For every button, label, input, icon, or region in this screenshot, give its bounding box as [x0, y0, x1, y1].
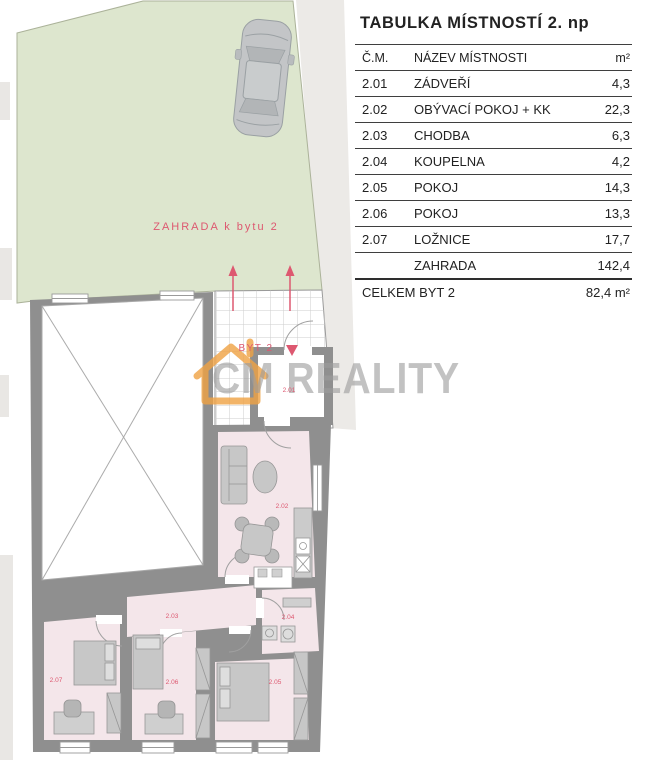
- cell-name: ZÁDVEŘÍ: [414, 76, 566, 91]
- cell-area: 17,7: [566, 232, 632, 247]
- cell-name: OBÝVACÍ POKOJ + KK: [414, 102, 566, 117]
- cell-area: 14,3: [566, 180, 632, 195]
- table-row: ZAHRADA 142,4: [355, 252, 632, 278]
- room-label-201: 2.01: [283, 387, 296, 394]
- table-row: 2.07 LOŽNICE 17,7: [355, 226, 632, 252]
- coffee-table: [253, 461, 277, 493]
- wc-niche: [254, 567, 292, 588]
- table-row: 2.04 KOUPELNA 4,2: [355, 148, 632, 174]
- cell-number: 2.06: [355, 206, 414, 221]
- table-total-row: CELKEM BYT 2 82,4 m²: [355, 278, 632, 305]
- wardrobe-207: [107, 693, 121, 733]
- cell-area: 4,2: [566, 154, 632, 169]
- cell-number: 2.03: [355, 128, 414, 143]
- cell-name: ZAHRADA: [414, 258, 566, 273]
- cell-number: 2.01: [355, 76, 414, 91]
- table-row: 2.01 ZÁDVEŘÍ 4,3: [355, 70, 632, 96]
- table-row: 2.02 OBÝVACÍ POKOJ + KK 22,3: [355, 96, 632, 122]
- neighbor-buildings: [0, 82, 13, 760]
- bed-205: [217, 663, 269, 721]
- cell-area: 22,3: [566, 102, 632, 117]
- room-label-203: 2.03: [166, 613, 179, 620]
- cell-name: POKOJ: [414, 206, 566, 221]
- watermark-text: CM REALITY: [212, 354, 460, 403]
- cell-area: 6,3: [566, 128, 632, 143]
- table-row: 2.03 CHODBA 6,3: [355, 122, 632, 148]
- cell-name: LOŽNICE: [414, 232, 566, 247]
- room-label-206: 2.06: [166, 679, 179, 686]
- cell-area: 4,3: [566, 76, 632, 91]
- total-area: 82,4 m²: [566, 285, 632, 300]
- room-table-panel: TABULKA MÍSTNOSTÍ 2. np Č.M. NÁZEV MÍSTN…: [355, 8, 632, 305]
- cell-number: 2.07: [355, 232, 414, 247]
- cell-name: KOUPELNA: [414, 154, 566, 169]
- cell-name: CHODBA: [414, 128, 566, 143]
- column-header-name: NÁZEV MÍSTNOSTI: [414, 51, 566, 65]
- column-header-area: m²: [566, 51, 632, 65]
- cell-number: 2.04: [355, 154, 414, 169]
- table-title: TABULKA MÍSTNOSTÍ 2. np: [360, 14, 632, 33]
- cell-name: POKOJ: [414, 180, 566, 195]
- cell-area: 13,3: [566, 206, 632, 221]
- entrance-label: BYT 2: [238, 343, 273, 354]
- bed-206: [133, 635, 163, 689]
- bed-207: [74, 641, 116, 685]
- kitchenette: [294, 508, 312, 578]
- total-label: CELKEM BYT 2: [355, 285, 566, 300]
- room-label-205: 2.05: [269, 679, 282, 686]
- cell-area: 142,4: [566, 258, 632, 273]
- crossed-structure: [42, 298, 203, 580]
- table-header-row: Č.M. NÁZEV MÍSTNOSTI m²: [355, 44, 632, 70]
- cell-number: 2.05: [355, 180, 414, 195]
- cell-number: 2.02: [355, 102, 414, 117]
- sofa: [221, 446, 247, 504]
- table-row: 2.06 POKOJ 13,3: [355, 200, 632, 226]
- garden-label: ZAHRADA k bytu 2: [153, 221, 279, 233]
- room-label-207: 2.07: [50, 677, 63, 684]
- room-label-202: 2.02: [276, 503, 289, 510]
- column-header-number: Č.M.: [355, 51, 414, 65]
- room-label-204: 2.04: [282, 614, 295, 621]
- table-row: 2.05 POKOJ 14,3: [355, 174, 632, 200]
